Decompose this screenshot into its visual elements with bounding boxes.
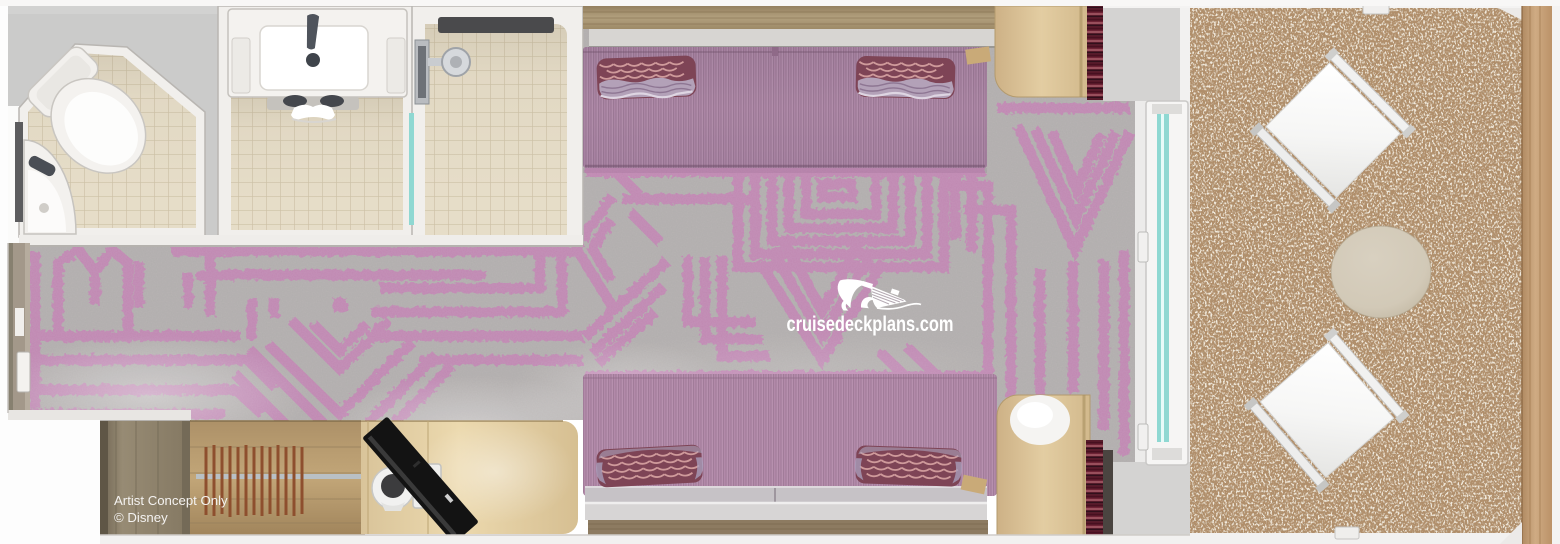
svg-text:Artist Concept Only: Artist Concept Only [114,493,228,508]
svg-text:© Disney: © Disney [114,510,168,525]
svg-text:cruisedeckplans.com: cruisedeckplans.com [787,313,954,336]
